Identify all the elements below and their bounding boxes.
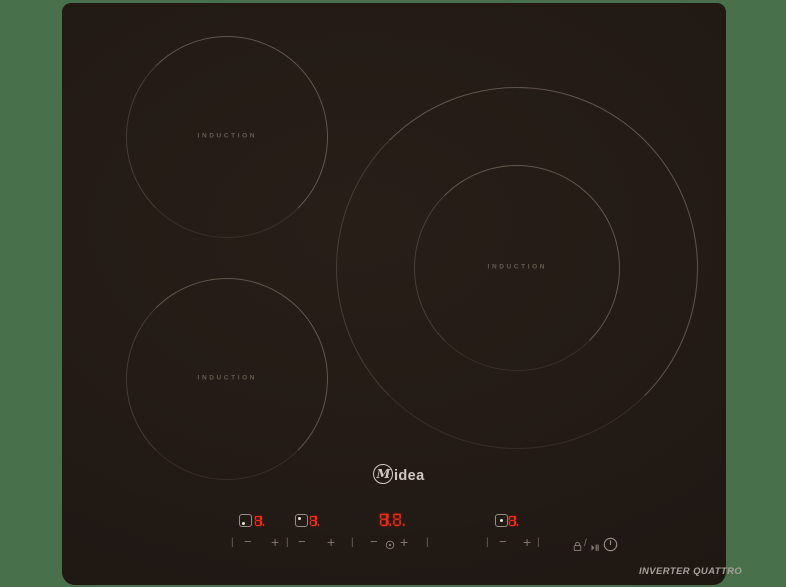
zone-indicator-dot bbox=[298, 517, 301, 520]
plus-button-top-left-zone[interactable]: + bbox=[327, 535, 335, 549]
zone-indicator-top-left-icon bbox=[295, 514, 308, 527]
power-icon bbox=[603, 537, 618, 552]
plus-button-bottom-left-zone[interactable]: + bbox=[271, 535, 279, 549]
zone-indicator-dot bbox=[242, 522, 245, 525]
timer-plus-button[interactable]: + bbox=[400, 535, 408, 549]
zone-indicator-bottom-left-icon bbox=[239, 514, 252, 527]
lock-pause-key[interactable] bbox=[573, 539, 582, 557]
power-level-display-right bbox=[509, 515, 520, 526]
midea-logo-text: idea bbox=[394, 469, 425, 484]
timer-clock-icon bbox=[385, 540, 395, 550]
separator-mark: | bbox=[286, 536, 289, 550]
minus-button-right-zone[interactable]: − bbox=[499, 535, 507, 549]
timer-minus-button[interactable]: − bbox=[370, 535, 378, 549]
separator-mark: | bbox=[231, 536, 234, 550]
separator-mark: | bbox=[486, 536, 489, 550]
zone-label-top-left: INDUCTION bbox=[195, 133, 257, 140]
product-photo-background: { "page": { "background_color": "#48714b… bbox=[0, 0, 786, 587]
lock-pause-divider: / bbox=[584, 537, 587, 551]
plus-button-right-zone[interactable]: + bbox=[523, 535, 531, 549]
power-level-display-top-left bbox=[310, 515, 321, 526]
zone-label-bottom-left: INDUCTION bbox=[195, 375, 257, 382]
midea-logo: Midea bbox=[373, 464, 425, 484]
separator-mark: | bbox=[351, 536, 354, 550]
timer-key[interactable] bbox=[385, 537, 395, 555]
midea-logo-circle-icon: M bbox=[373, 464, 393, 484]
zone-indicator-dot bbox=[500, 519, 503, 522]
separator-mark: | bbox=[537, 536, 540, 550]
power-button[interactable] bbox=[603, 537, 618, 557]
model-label: INVERTER QUATTRO bbox=[639, 566, 742, 577]
pause-key[interactable] bbox=[591, 540, 599, 558]
separator-mark: | bbox=[426, 536, 429, 550]
power-level-display-bottom-left bbox=[255, 515, 266, 526]
minus-button-bottom-left-zone[interactable]: − bbox=[244, 535, 252, 549]
pause-icon bbox=[591, 543, 599, 553]
zone-label-right: INDUCTION bbox=[485, 264, 547, 271]
timer-display bbox=[380, 513, 407, 526]
zone-indicator-right-icon bbox=[495, 514, 508, 527]
midea-logo-m: M bbox=[377, 466, 391, 482]
lock-icon bbox=[573, 541, 582, 552]
minus-button-top-left-zone[interactable]: − bbox=[298, 535, 306, 549]
induction-cooktop: INDUCTION INDUCTION INDUCTION Midea | − … bbox=[62, 3, 726, 585]
